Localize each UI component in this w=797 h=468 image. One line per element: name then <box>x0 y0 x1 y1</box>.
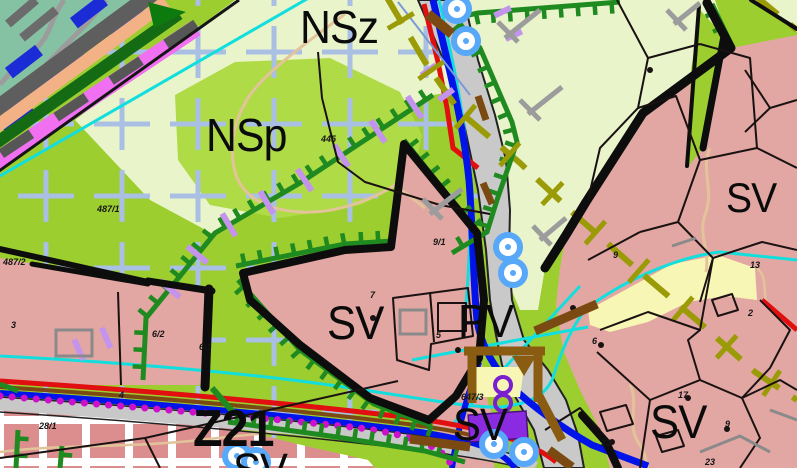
zoning-map-graphics <box>0 0 797 468</box>
map-canvas[interactable]: NSzNSpSVPVSVSVSVZ21SV487/2487/14456/26/1… <box>0 0 797 468</box>
